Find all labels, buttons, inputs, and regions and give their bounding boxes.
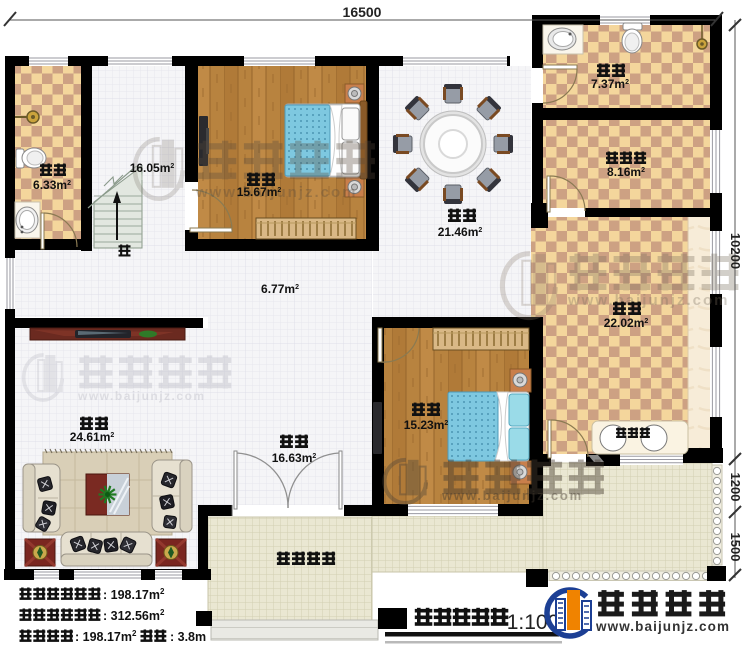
svg-text:22.02m2: 22.02m2	[604, 316, 649, 330]
svg-text:6.33m2: 6.33m2	[33, 178, 71, 192]
svg-text:www.baijunjz.com: www.baijunjz.com	[595, 619, 730, 634]
svg-text:15.23m2: 15.23m2	[404, 418, 449, 432]
svg-text:7.37m2: 7.37m2	[591, 77, 629, 91]
svg-text:2: 2	[160, 587, 165, 596]
svg-text:6.77m2: 6.77m2	[261, 282, 299, 296]
svg-text:: 3.8m: : 3.8m	[170, 630, 206, 644]
svg-text:: 198.17m: : 198.17m	[75, 630, 132, 644]
svg-text:16.63m2: 16.63m2	[272, 451, 317, 465]
svg-text:: 312.56m: : 312.56m	[103, 609, 160, 623]
svg-text:8.16m2: 8.16m2	[607, 165, 645, 179]
svg-text:15.67m2: 15.67m2	[237, 185, 282, 199]
svg-text:10200: 10200	[728, 233, 743, 269]
svg-text:2: 2	[160, 608, 165, 617]
svg-text:16.05m2: 16.05m2	[130, 161, 175, 175]
svg-text:21.46m2: 21.46m2	[438, 225, 483, 239]
svg-text:www.baijunjz.com: www.baijunjz.com	[441, 488, 583, 503]
svg-text:16500: 16500	[343, 4, 382, 20]
svg-text:1200: 1200	[728, 473, 743, 502]
svg-text:: 198.17m: : 198.17m	[103, 588, 160, 602]
svg-text:2: 2	[132, 629, 137, 638]
svg-text:24.61m2: 24.61m2	[70, 430, 115, 444]
svg-text:www.baijunjz.com: www.baijunjz.com	[77, 389, 206, 403]
svg-text:www.baijunjz.com: www.baijunjz.com	[567, 292, 729, 309]
svg-text:1500: 1500	[728, 533, 743, 562]
